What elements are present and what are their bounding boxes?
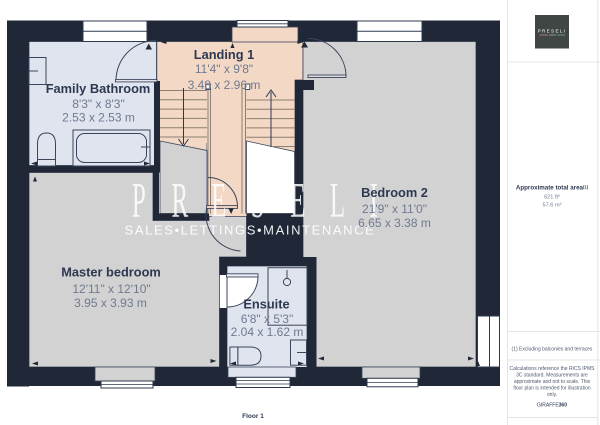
- svg-text:57.6 m²: 57.6 m²: [543, 203, 562, 209]
- svg-text:6.65 x 3.38 m: 6.65 x 3.38 m: [358, 216, 431, 230]
- svg-text:only.: only.: [547, 392, 557, 398]
- svg-text:621 ft²: 621 ft²: [544, 195, 560, 201]
- svg-text:Approximate total area(1): Approximate total area(1): [516, 184, 589, 191]
- svg-text:SALES•LETTINGS•MAINTENANCE: SALES•LETTINGS•MAINTENANCE: [125, 223, 376, 238]
- svg-text:3.95 x 3.93 m: 3.95 x 3.93 m: [74, 296, 147, 310]
- svg-text:Master bedroom: Master bedroom: [61, 265, 161, 280]
- svg-text:8'3" x 8'3": 8'3" x 8'3": [72, 97, 124, 111]
- svg-text:6'8" x 5'3": 6'8" x 5'3": [241, 312, 293, 326]
- svg-text:(1) Excluding balconies and te: (1) Excluding balconies and terraces: [512, 347, 593, 353]
- svg-text:21'9" x 11'0": 21'9" x 11'0": [362, 202, 427, 216]
- svg-text:12'11" x 12'10": 12'11" x 12'10": [72, 282, 150, 296]
- svg-text:floor plan is intended for ill: floor plan is intended for illustration: [513, 386, 590, 392]
- svg-text:PRESELI: PRESELI: [538, 29, 567, 34]
- svg-text:11'4" x 9'8": 11'4" x 9'8": [195, 62, 253, 76]
- svg-text:3C standard. Measurements are: 3C standard. Measurements are: [516, 373, 588, 379]
- svg-text:3.48 x 2.96 m: 3.48 x 2.96 m: [188, 78, 261, 92]
- svg-text:Landing 1: Landing 1: [194, 47, 254, 62]
- svg-text:2.53 x 2.53 m: 2.53 x 2.53 m: [62, 111, 135, 125]
- svg-text:Bedroom 2: Bedroom 2: [361, 185, 428, 200]
- svg-text:Floor 1: Floor 1: [242, 413, 264, 420]
- svg-text:2.04 x 1.62 m: 2.04 x 1.62 m: [231, 325, 304, 339]
- svg-text:GIRAFFE360: GIRAFFE360: [537, 403, 567, 409]
- svg-text:Family Bathroom: Family Bathroom: [46, 81, 151, 96]
- svg-text:Ensuite: Ensuite: [243, 297, 289, 312]
- svg-text:Calculations reference the RIC: Calculations reference the RICS IPMS: [509, 366, 595, 372]
- svg-text:approximate and not to scale.: approximate and not to scale. This: [514, 379, 591, 385]
